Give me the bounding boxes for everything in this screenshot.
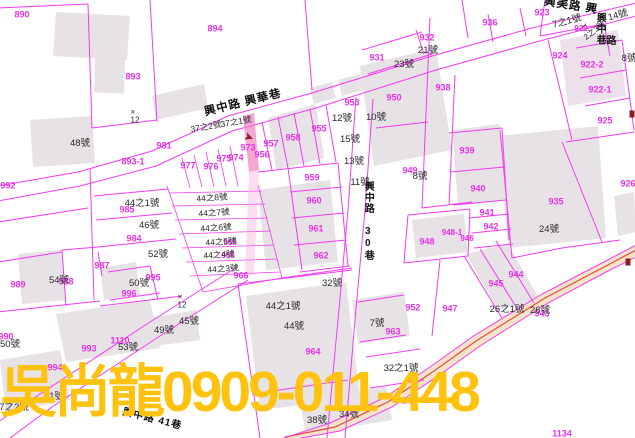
highlight-parcel[interactable]	[243, 113, 259, 275]
watermark-text: 吳尚龍0909-011-448	[0, 346, 635, 428]
map-root[interactable]: 890894893981893-199297797697597497395695…	[0, 0, 635, 438]
